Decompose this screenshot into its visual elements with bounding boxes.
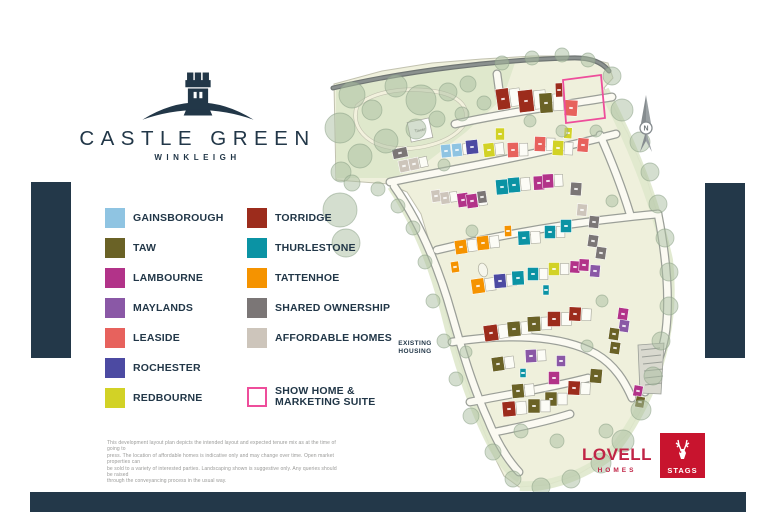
plot-number-mark (537, 182, 541, 184)
plot-number-mark (521, 372, 525, 374)
lovell-logo: LOVELL HOMES (578, 445, 656, 474)
plot-number-mark (546, 180, 550, 182)
svg-text:N: N (643, 126, 648, 133)
tree-icon (362, 100, 382, 120)
stags-logo: STAGS (660, 433, 705, 478)
house-gainsborough (440, 144, 451, 158)
plot-number-mark (594, 375, 598, 377)
house-lambourne (549, 372, 560, 385)
garage-unit (519, 143, 528, 156)
tree-icon (439, 83, 457, 101)
plot-number-mark (557, 89, 561, 91)
legend-label: MAYLANDS (133, 298, 193, 318)
plot-number-mark (582, 264, 586, 266)
house-thurlestone (561, 220, 572, 233)
legend-label: TAW (133, 238, 156, 258)
plot-number-mark (498, 133, 502, 135)
house-affordable (431, 189, 442, 202)
legend-swatch (247, 328, 267, 348)
lovell-sub: HOMES (578, 467, 656, 474)
house-redbourne (496, 128, 505, 140)
page: Tower CASTLE GREEN WINKLEIGH GAINSBOROUG… (0, 0, 768, 512)
disclaimer-line: This development layout plan depicts the… (107, 440, 337, 453)
tree-icon (455, 107, 469, 121)
disclaimer-line: through the conveyancing process in the … (107, 478, 337, 484)
house-thurlestone (518, 230, 541, 245)
house-maylands (618, 319, 630, 332)
plot-number-mark (544, 289, 548, 291)
tree-icon (449, 372, 463, 386)
tree-icon (660, 263, 678, 281)
house-torridge (548, 312, 572, 327)
house-thurlestone (520, 369, 526, 378)
tree-icon (581, 340, 593, 352)
house-taw (528, 399, 550, 413)
plot-number-mark (573, 313, 577, 315)
plot-number-mark (574, 188, 578, 190)
plot-number-mark (564, 225, 568, 227)
plot-number-mark (529, 355, 533, 357)
tree-icon (371, 182, 385, 196)
legend-swatch (105, 388, 125, 408)
plot-number-mark (531, 273, 535, 275)
plot-number-mark (500, 186, 504, 188)
tree-icon (603, 67, 621, 85)
tree-icon (611, 99, 633, 121)
tree-icon (438, 159, 450, 171)
garage-unit (558, 393, 567, 405)
plot-number-mark (573, 266, 577, 268)
plot-number-mark (455, 149, 459, 151)
house-leaside (507, 142, 528, 158)
plot-number-mark (532, 405, 536, 407)
plot-number-mark (569, 107, 573, 109)
tree-icon (406, 85, 436, 115)
plot-number-mark (481, 242, 485, 244)
legend-swatch (247, 298, 267, 318)
disclaimer-line: press. The location of affordable homes … (107, 453, 337, 466)
tree-icon (505, 471, 521, 487)
house-lambourne (617, 307, 629, 320)
garage-unit (524, 384, 534, 397)
show-home-label-line2: MARKETING SUITE (275, 396, 375, 408)
plot-number-mark (516, 390, 520, 392)
existing-housing-line2: HOUSING (386, 348, 444, 356)
garage-unit (560, 264, 569, 275)
plot-number-mark (470, 146, 474, 148)
house-torridge (569, 307, 592, 322)
plot-number-mark (549, 398, 553, 400)
garage-unit (516, 401, 527, 414)
garage-unit (467, 239, 478, 252)
show-home-label: SHOW HOME & MARKETING SUITE (275, 386, 375, 408)
tree-icon (426, 294, 440, 308)
tree-icon (631, 400, 651, 420)
tree-icon (485, 444, 501, 460)
house-thurlestone (543, 285, 549, 295)
legend-swatch (247, 208, 267, 228)
house-shared (588, 216, 599, 229)
plot-number-mark (444, 150, 448, 152)
garage-unit (495, 143, 505, 156)
legend-label: GAINSBOROUGH (133, 208, 224, 228)
garage-unit (564, 142, 573, 155)
house-maylands (589, 265, 600, 278)
garage-unit (539, 269, 548, 280)
disclaimer-text: This development layout plan depicts the… (107, 440, 337, 485)
plot-number-mark (507, 408, 511, 410)
house-redbourne (552, 140, 573, 156)
house-tattenhoe (450, 261, 459, 273)
tree-icon (348, 144, 372, 168)
legend-label: ROCHESTER (133, 358, 201, 378)
plot-number-mark (511, 149, 515, 151)
tree-icon (406, 221, 420, 235)
garage-unit (581, 308, 591, 320)
plot-number-mark (581, 144, 585, 146)
tree-icon (477, 96, 491, 110)
plot-number-mark (506, 230, 510, 232)
tree-icon (649, 195, 667, 213)
legend-swatch (247, 238, 267, 258)
house-leaside (534, 136, 555, 152)
tree-icon (550, 434, 564, 448)
house-taw (608, 327, 620, 340)
tree-icon (406, 119, 426, 139)
plot-number-mark (548, 231, 552, 233)
brand-name: CASTLE GREEN (50, 127, 345, 151)
house-rochester (465, 139, 478, 154)
north-arrow-icon: N (633, 93, 659, 157)
tree-icon (525, 51, 539, 65)
garage-unit (520, 177, 530, 190)
tree-icon (555, 48, 569, 62)
left-frame-bar (31, 182, 71, 358)
legend-label: TORRIDGE (275, 208, 332, 228)
legend-label: THURLESTONE (275, 238, 356, 258)
plot-number-mark (512, 184, 516, 186)
tree-icon (644, 367, 662, 385)
house-shared (595, 246, 607, 259)
tree-icon (581, 53, 595, 67)
plot-number-mark (593, 270, 597, 272)
house-thurlestone (507, 176, 530, 193)
house-lambourne (633, 385, 644, 397)
garage-unit (450, 191, 458, 202)
plot-number-mark (552, 377, 556, 379)
plot-number-mark (544, 102, 548, 104)
tree-icon (590, 125, 602, 137)
existing-housing-label: EXISTING HOUSING (386, 340, 444, 356)
plot-number-mark (524, 100, 528, 102)
tree-icon (374, 129, 398, 153)
legend-label: REDBOURNE (133, 388, 202, 408)
stag-icon (670, 438, 695, 462)
show-home-swatch (247, 387, 267, 407)
plot-number-mark (552, 318, 556, 320)
house-shared (570, 182, 582, 196)
legend-swatch (105, 358, 125, 378)
house-tattenhoe (504, 225, 511, 236)
house-shared (477, 190, 488, 203)
legend-label: LEASIDE (133, 328, 180, 348)
garage-unit (580, 382, 590, 394)
plot-number-mark (556, 147, 560, 149)
garage-unit (537, 350, 546, 361)
plot-number-mark (512, 328, 516, 330)
tree-icon (596, 295, 608, 307)
brand-location: WINKLEIGH (50, 153, 345, 162)
garage-unit (541, 400, 550, 412)
house-torridge (568, 381, 591, 396)
tree-icon (606, 195, 618, 207)
house-thurlestone (512, 271, 525, 286)
house-taw (609, 341, 621, 354)
plot-number-mark (516, 277, 520, 279)
legend-swatch (105, 208, 125, 228)
plot-number-mark (498, 280, 502, 282)
tree-icon (391, 199, 405, 213)
tree-icon (656, 229, 674, 247)
legend-label: TATTENHOE (275, 268, 339, 288)
plot-number-mark (532, 323, 536, 325)
legend-label: LAMBOURNE (133, 268, 203, 288)
house-shared (587, 234, 599, 247)
legend-swatch (105, 328, 125, 348)
tree-icon (599, 424, 613, 438)
plot-number-mark (538, 143, 542, 145)
stags-name: STAGS (660, 466, 705, 475)
castle-icon (139, 64, 257, 124)
plot-number-mark (592, 221, 596, 223)
legend-swatch (105, 238, 125, 258)
legend-label: AFFORDABLE HOMES (275, 328, 392, 348)
tree-icon (418, 255, 432, 269)
house-leaside (577, 138, 589, 153)
tree-icon (466, 225, 478, 237)
plot-number-mark (552, 268, 556, 270)
plot-number-mark (559, 360, 563, 362)
tree-icon (339, 82, 365, 108)
garage-unit (504, 356, 515, 369)
tree-icon (660, 297, 678, 315)
legend-label: SHARED OWNERSHIP (275, 298, 390, 318)
house-thurlestone (528, 268, 548, 281)
tree-icon (652, 332, 670, 350)
plot-number-mark (580, 209, 584, 211)
existing-housing-line1: EXISTING (386, 340, 444, 348)
garage-unit (554, 174, 563, 186)
tree-icon (495, 56, 509, 70)
legend-swatch (105, 268, 125, 288)
tree-icon (385, 75, 407, 97)
lovell-name: LOVELL (578, 445, 656, 465)
right-frame-bar (705, 183, 745, 358)
bottom-frame-bar (30, 492, 746, 512)
house-affordable (576, 204, 587, 217)
house-lambourne (579, 259, 590, 272)
tree-icon (429, 111, 445, 127)
tree-icon (524, 115, 536, 127)
house-taw (589, 369, 602, 384)
tree-icon (344, 175, 360, 191)
house-maylands (557, 356, 566, 367)
tree-icon (463, 408, 479, 424)
tree-icon (641, 163, 659, 181)
tree-icon (460, 346, 472, 358)
house-redbourne (549, 263, 569, 276)
disclaimer-line: be sold to a variety of interested parti… (107, 466, 337, 479)
plot-number-mark (487, 149, 491, 151)
garage-unit (489, 235, 500, 248)
plot-number-mark (572, 387, 576, 389)
house-torridge (555, 83, 562, 97)
garage-unit (419, 156, 429, 167)
plot-number-mark (522, 237, 526, 239)
legend-swatch (105, 298, 125, 318)
garage-unit (530, 231, 540, 243)
tree-icon (460, 76, 476, 92)
house-maylands (525, 349, 546, 363)
tree-icon (556, 125, 568, 137)
legend-swatch (247, 268, 267, 288)
house-lambourne (542, 173, 563, 188)
tree-icon (514, 424, 528, 438)
